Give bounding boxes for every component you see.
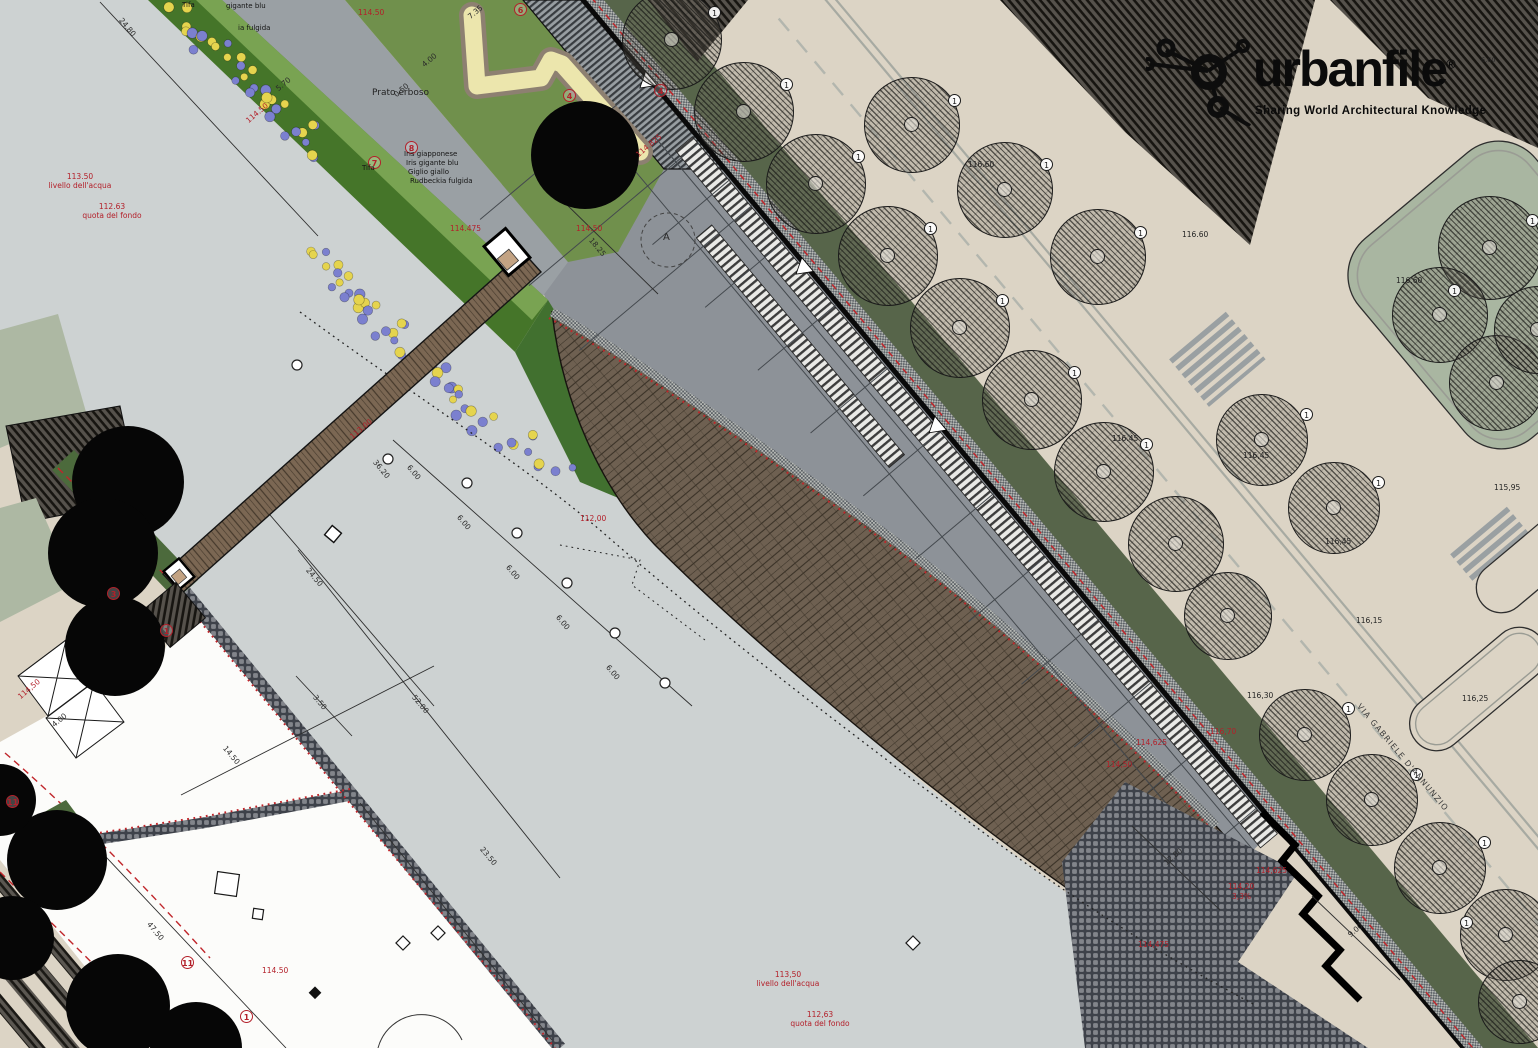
number-badge: 1: [996, 294, 1009, 307]
plant-label: gigante blu: [226, 2, 266, 11]
registered-mark: ®: [1446, 56, 1456, 71]
elevation-label: 114,475: [1138, 940, 1169, 949]
tree-canopy: [957, 142, 1053, 238]
number-badge: 1: [1140, 438, 1153, 451]
tree-canopy: [1394, 822, 1486, 914]
tree-canopy-solid: [48, 498, 158, 608]
site-plan-drawing: urbanfile® Sharing World Architectural K…: [0, 0, 1538, 1048]
number-badge: 1: [948, 94, 961, 107]
number-badge: 4: [654, 84, 667, 97]
plant-label: Iris giapponese: [404, 150, 457, 159]
number-badge: 6: [514, 3, 527, 16]
elevation-label: 116,45: [1325, 537, 1351, 546]
elevation-label: 116,70: [1210, 727, 1236, 736]
number-badge: 1: [1372, 476, 1385, 489]
number-badge: 1: [780, 78, 793, 91]
tree-canopy: [864, 77, 960, 173]
number-badge: 1: [160, 624, 173, 637]
tree-canopy: [1054, 422, 1154, 522]
elevation-label: 116,25: [1462, 694, 1488, 703]
elevation-label: 114,20: [1228, 882, 1254, 891]
water-level-label: 113.50 livello dell'acqua: [30, 172, 130, 191]
number-badge: 1: [1460, 916, 1473, 929]
number-badge: 1: [852, 150, 865, 163]
number-badge: 1: [1300, 408, 1313, 421]
elevation-label: 116.60: [1182, 230, 1208, 239]
bed-level-label: 112.63 quota del fondo: [62, 202, 162, 221]
elevation-label: 112,00: [580, 514, 606, 523]
logo-tagline: Sharing World Architectural Knowledge: [1255, 105, 1486, 117]
elevation-label: 116,45: [1243, 451, 1269, 460]
plant-label: Giglio giallo: [408, 168, 449, 177]
tree-canopy: [1050, 209, 1146, 305]
plant-label: Rudbeckia fulgida: [410, 177, 473, 186]
number-badge: 4: [563, 89, 576, 102]
number-badge: 1: [1068, 366, 1081, 379]
tree-canopy: [1259, 689, 1351, 781]
tree-canopy: [1216, 394, 1308, 486]
plant-label: Tifa: [182, 1, 195, 10]
elevation-label: 114,625: [1136, 738, 1167, 747]
plant-label: Tifa: [362, 164, 375, 173]
elevation-label: 116.60: [968, 160, 994, 169]
plant-label: ia fulgida: [238, 24, 270, 33]
tree-canopy: [982, 350, 1082, 450]
tree-canopy: [766, 134, 866, 234]
number-badge: 11: [181, 956, 194, 969]
water-level-label: 113,50 livello dell'acqua: [738, 970, 838, 989]
number-badge: 1: [1478, 836, 1491, 849]
number-badge: 1: [924, 222, 937, 235]
elevation-label: 114.475: [450, 224, 481, 233]
number-badge: 1: [1134, 226, 1147, 239]
tree-canopy: [1184, 572, 1272, 660]
section-marker-label: A: [663, 232, 670, 245]
elevation-label: 116,15: [1356, 616, 1382, 625]
tree-canopy: [910, 278, 1010, 378]
number-badge: 1: [1040, 158, 1053, 171]
tree-canopy: [694, 62, 794, 162]
tree-canopy: [838, 206, 938, 306]
tree-canopy-solid: [531, 101, 639, 209]
elevation-label: 114.50: [262, 966, 288, 975]
number-badge: 1: [708, 6, 721, 19]
number-badge: 3: [107, 587, 120, 600]
elevation-label: 114,50: [1106, 760, 1132, 769]
number-badge: 1: [1526, 214, 1538, 227]
elevation-label: 116,60: [1396, 276, 1422, 285]
elevation-label: 114,625: [1256, 866, 1287, 875]
number-badge: 1: [1342, 702, 1355, 715]
elevation-label: 116,30: [1247, 691, 1273, 700]
tree-canopy-solid: [65, 596, 165, 696]
elevation-label: 114.50: [576, 224, 602, 233]
plant-label: Iris gigante blu: [406, 159, 458, 168]
urbanfile-logo: urbanfile® Sharing World Architectural K…: [1146, 22, 1538, 122]
elevation-label: 114.50: [358, 8, 384, 17]
elevation-label: 116.45: [1112, 434, 1138, 443]
number-badge: 1: [240, 1010, 253, 1023]
elevation-label: 115,95: [1494, 483, 1520, 492]
logo-brand-text: urbanfile®: [1253, 40, 1456, 98]
number-badge: 1: [1448, 284, 1461, 297]
number-badge: 11: [6, 795, 19, 808]
bed-level-label: 112,63 quota del fondo: [770, 1010, 870, 1029]
urbanfile-molecule-icon: [1146, 26, 1256, 126]
slope-label: 3,3%: [1232, 892, 1251, 901]
